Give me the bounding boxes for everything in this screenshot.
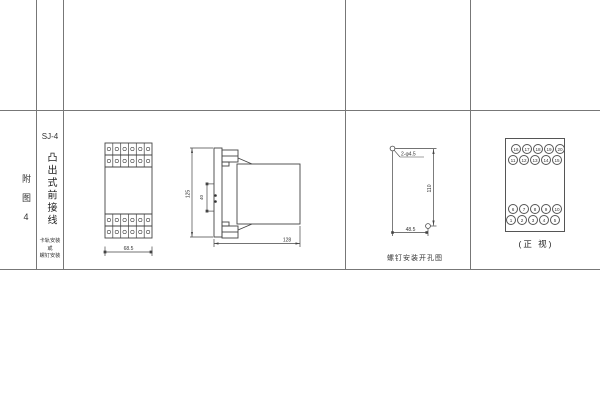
catalog-page: 68.5 125 [0, 0, 600, 400]
terminal-2: 2 [517, 215, 527, 225]
terminal-panel-caption: (正 视) [495, 238, 577, 250]
terminal-11: 11 [508, 155, 518, 165]
terminal-17: 17 [522, 144, 532, 154]
terminal-10: 10 [552, 204, 562, 214]
drill-diagram-caption: 螺钉安装开孔图 [374, 253, 456, 263]
terminal-7: 7 [519, 204, 529, 214]
terminal-5: 5 [550, 215, 560, 225]
terminal-row-16-20: 16 17 18 19 20 [511, 144, 565, 154]
terminal-row-11-15: 11 12 13 14 15 [508, 155, 562, 165]
flange-span-dim-text: 40 [199, 195, 204, 201]
flange-span-dimension [206, 183, 214, 213]
drill-width-dimension [391, 151, 428, 236]
terminal-3: 3 [528, 215, 538, 225]
terminal-12: 12 [519, 155, 529, 165]
terminal-6: 6 [508, 204, 518, 214]
terminal-8: 8 [530, 204, 540, 214]
drill-diagram-drawing: 2-φ4.5 110 48.5 [390, 146, 436, 236]
terminal-20: 20 [555, 144, 565, 154]
terminal-1: 1 [506, 215, 516, 225]
mounting-note-line1: 卡轨安装 [36, 238, 64, 246]
figure-title: 凸出式前接线 [43, 152, 58, 227]
terminal-16: 16 [511, 144, 521, 154]
side-height-dim-text: 125 [186, 190, 192, 199]
mounting-note-line2: 或 [36, 246, 64, 254]
mounting-hole-bottom [426, 224, 431, 229]
terminal-13: 13 [530, 155, 540, 165]
mounting-note-line3: 螺钉安装 [36, 253, 64, 261]
side-view-drawing: 125 40 128 [186, 148, 301, 247]
mounting-note: 卡轨安装 或 螺钉安装 [36, 238, 64, 261]
mounting-hole-top [390, 146, 395, 151]
terminal-18: 18 [533, 144, 543, 154]
front-view-drawing: 68.5 [104, 143, 153, 256]
terminal-19: 19 [544, 144, 554, 154]
terminal-row-6-10: 6 7 8 9 10 [508, 204, 562, 214]
terminal-row-1-5: 1 2 3 4 5 [506, 215, 560, 225]
side-depth-dimension [214, 226, 300, 247]
side-height-dimension [190, 148, 213, 237]
side-depth-dim-text: 128 [283, 238, 292, 244]
terminal-14: 14 [541, 155, 551, 165]
model-label: SJ-4 [36, 132, 64, 141]
drill-width-dim-text: 48.5 [406, 227, 416, 233]
terminal-4: 4 [539, 215, 549, 225]
drill-height-dim-text: 110 [427, 184, 433, 192]
figure-number-label: 附图4 [20, 174, 33, 232]
hole-label-text: 2-φ4.5 [401, 151, 416, 157]
front-width-dim-text: 68.5 [124, 246, 134, 252]
terminal-15: 15 [552, 155, 562, 165]
terminal-9: 9 [541, 204, 551, 214]
